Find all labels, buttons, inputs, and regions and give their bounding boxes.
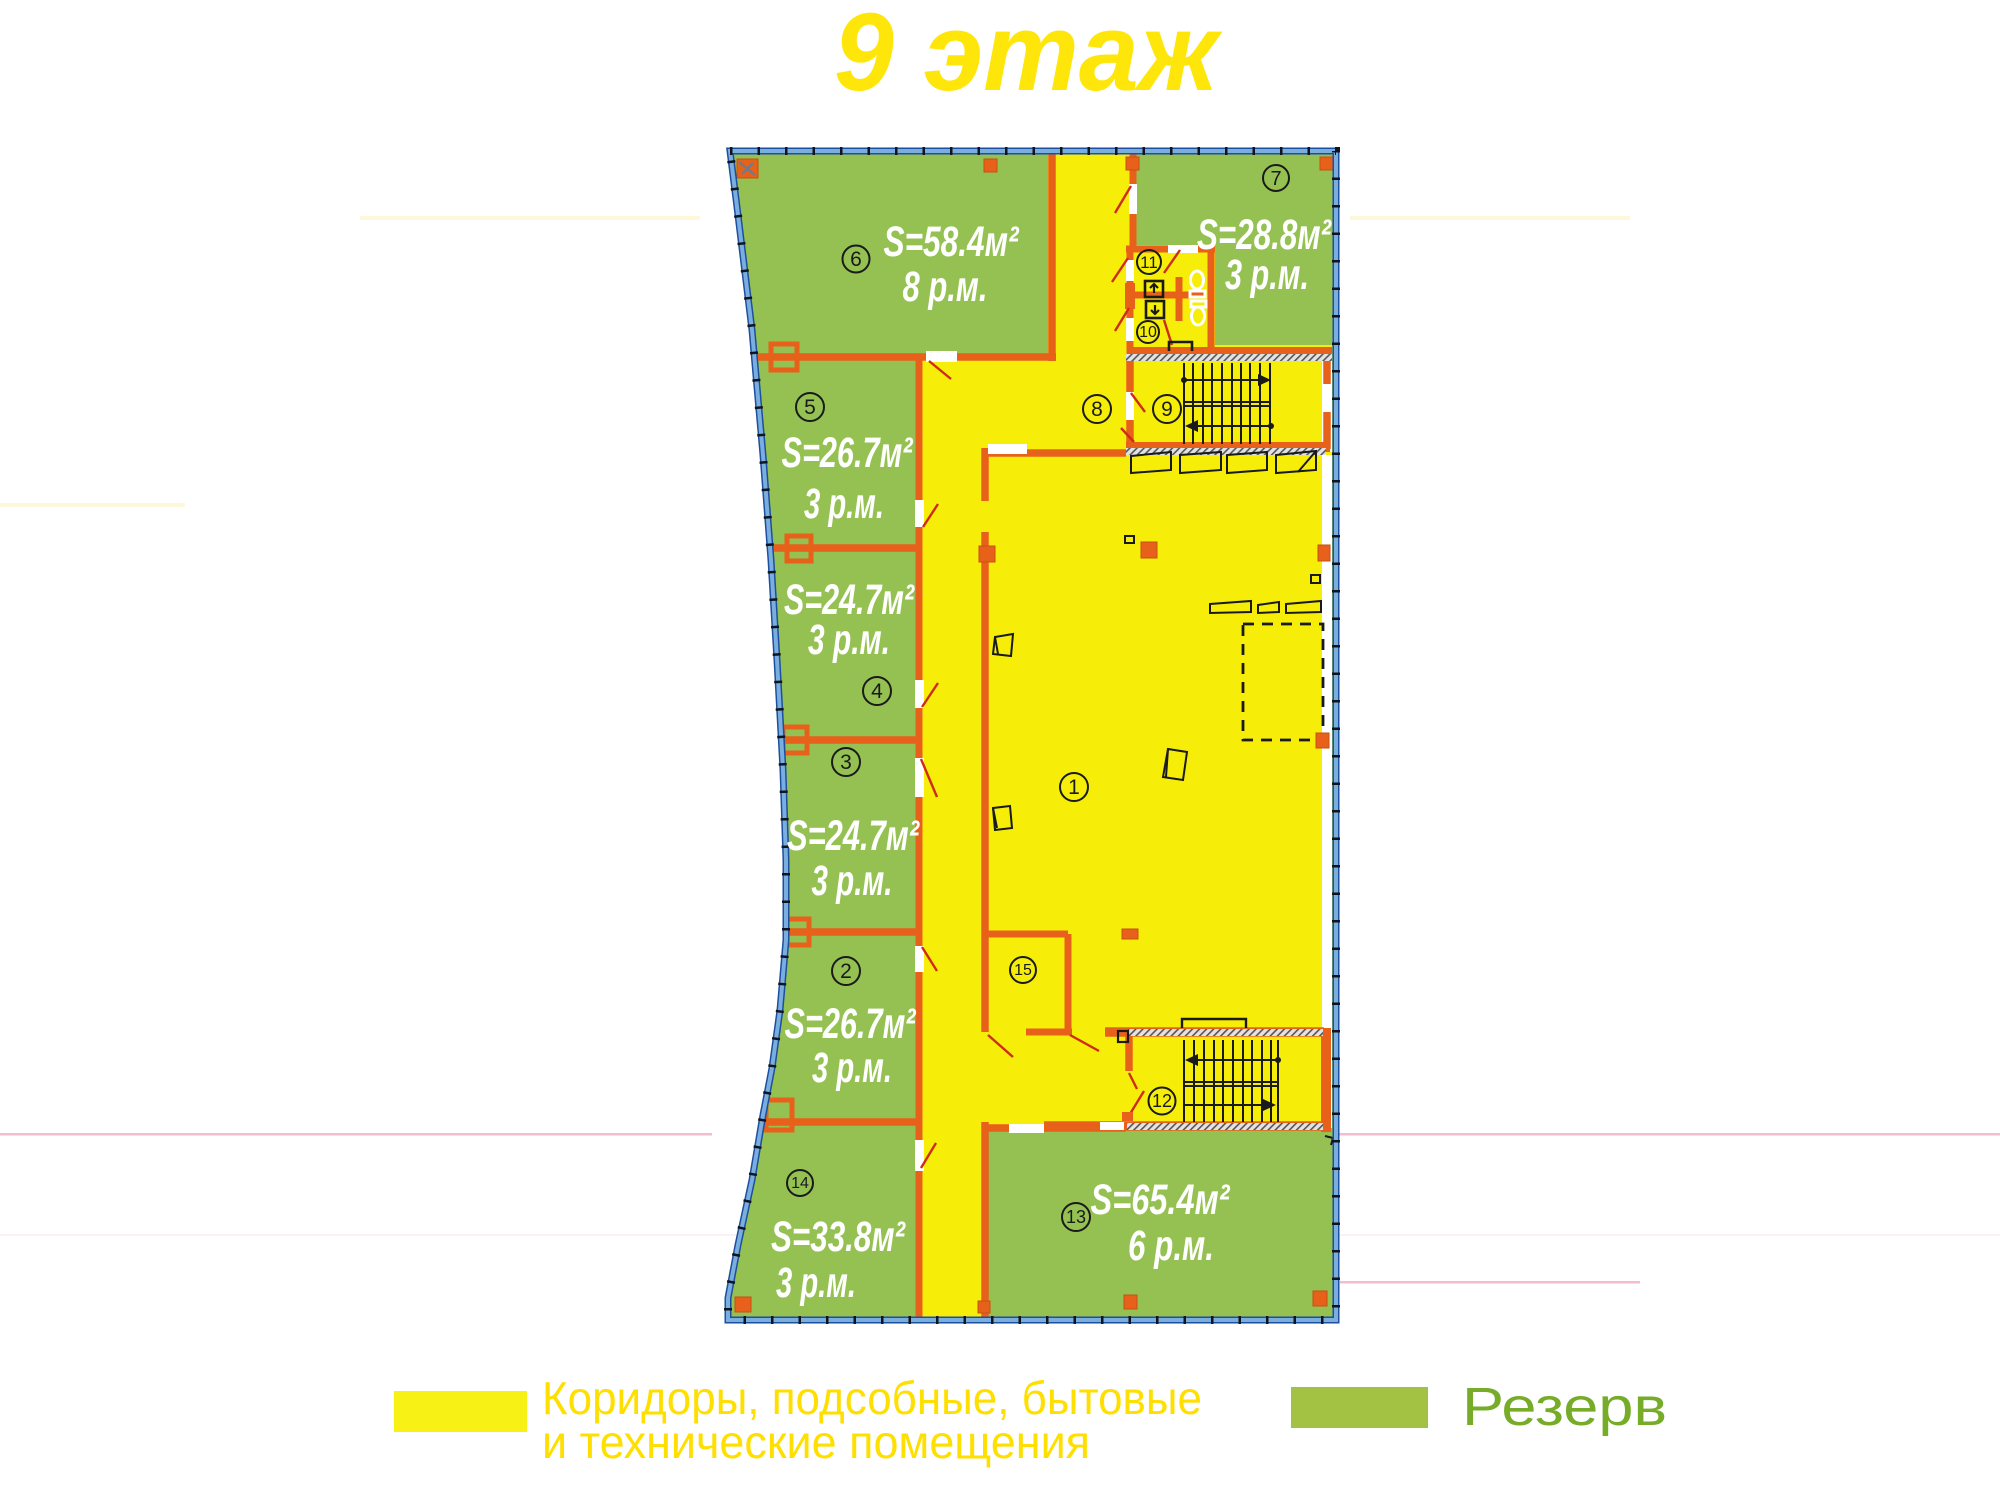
svg-text:9: 9 <box>1161 398 1173 421</box>
svg-text:14: 14 <box>791 1175 809 1192</box>
svg-text:3 р.м.: 3 р.м. <box>776 1259 856 1307</box>
svg-text:9 этаж: 9 этаж <box>834 0 1223 114</box>
svg-text:12: 12 <box>1152 1091 1172 1111</box>
svg-text:3 р.м.: 3 р.м. <box>808 616 890 664</box>
svg-text:3 р.м.: 3 р.м. <box>804 480 884 528</box>
svg-text:Резерв: Резерв <box>1462 1377 1667 1437</box>
svg-text:3: 3 <box>840 751 852 774</box>
svg-text:2: 2 <box>840 960 852 983</box>
svg-text:1: 1 <box>1068 776 1080 799</box>
svg-text:S=65.4м²: S=65.4м² <box>1091 1176 1231 1224</box>
svg-text:5: 5 <box>804 396 816 419</box>
svg-text:3 р.м.: 3 р.м. <box>812 857 893 905</box>
svg-text:7: 7 <box>1270 168 1281 190</box>
svg-text:S=24.7м²: S=24.7м² <box>787 812 920 860</box>
svg-text:3 р.м.: 3 р.м. <box>1225 251 1309 299</box>
svg-text:6 р.м.: 6 р.м. <box>1128 1222 1214 1270</box>
svg-text:15: 15 <box>1014 962 1032 979</box>
svg-text:S=33.8м²: S=33.8м² <box>771 1213 906 1261</box>
svg-text:3 р.м.: 3 р.м. <box>812 1044 892 1092</box>
svg-text:8 р.м.: 8 р.м. <box>903 263 988 311</box>
svg-text:и технические помещения: и технические помещения <box>542 1416 1090 1468</box>
svg-text:8: 8 <box>1091 398 1103 421</box>
svg-text:10: 10 <box>1139 324 1157 341</box>
svg-text:4: 4 <box>871 680 883 703</box>
svg-text:S=26.7м²: S=26.7м² <box>785 1000 917 1048</box>
svg-text:S=26.7м²: S=26.7м² <box>782 429 914 477</box>
svg-text:S=58.4м²: S=58.4м² <box>884 218 1020 266</box>
svg-text:6: 6 <box>850 248 862 271</box>
svg-text:11: 11 <box>1140 253 1158 272</box>
svg-text:13: 13 <box>1066 1207 1086 1227</box>
